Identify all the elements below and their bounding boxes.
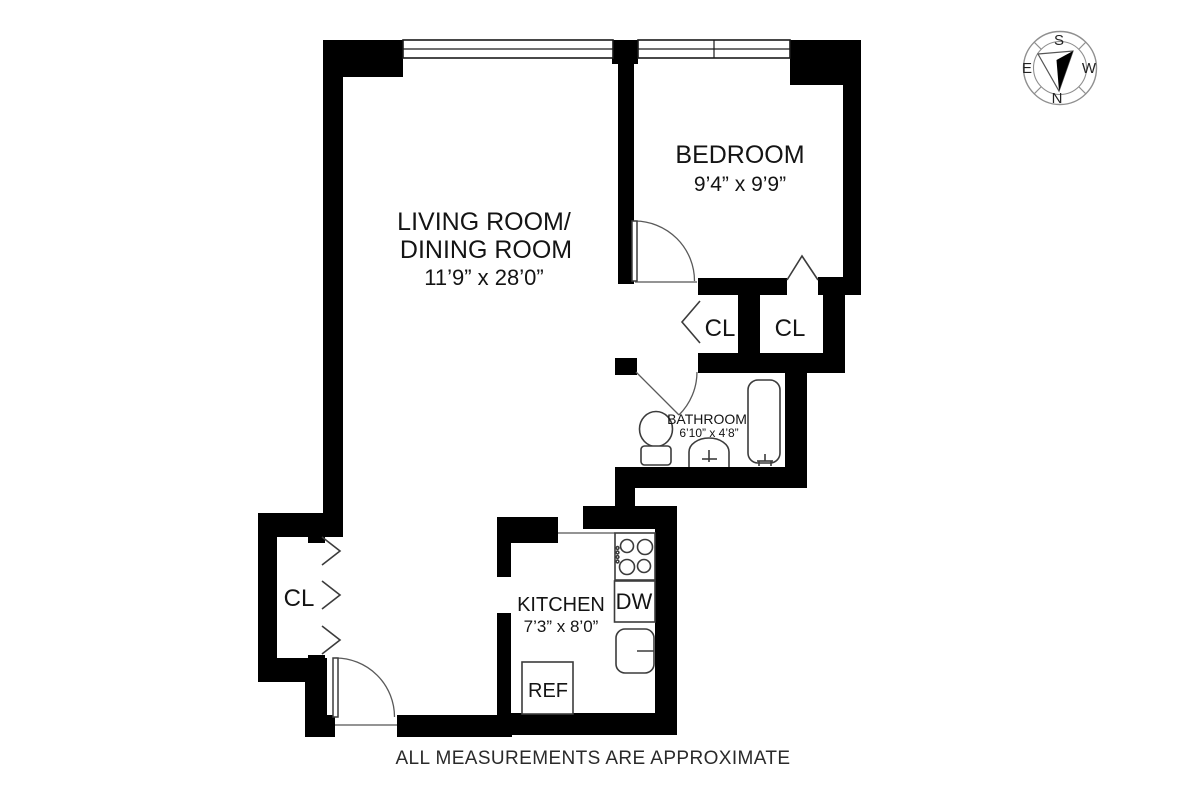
kitchen-dimensions: 7’3” x 8’0” [524,617,599,636]
bedroom-label: BEDROOM [675,141,804,169]
wall-segment [615,358,637,375]
wall-segment [698,353,845,373]
wall-segment [497,713,677,735]
bathroom-door [636,372,697,415]
dishwasher: DW [615,581,656,622]
burner [621,540,634,553]
windows [403,40,790,58]
stove [615,533,655,580]
bedroom-closet-label: CL [775,315,806,342]
bathroom-sink [689,438,729,467]
wall-segment [615,488,635,508]
wall-segment [305,715,335,737]
wall-segment [258,513,277,682]
wall-segment [615,467,807,488]
bathtub [748,380,780,466]
living-room-label-line1: LIVING ROOM/ [397,208,571,236]
compass-tick [1079,42,1086,49]
wall-segment [308,655,325,668]
wall-segment [258,513,343,537]
bathroom-label: BATHROOM [667,411,747,427]
measurements-disclaimer: ALL MEASUREMENTS ARE APPROXIMATE [395,748,790,769]
compass-letter-north: N [1052,90,1063,107]
burner [620,560,635,575]
wall-segment [843,40,861,295]
compass-tick [1034,42,1041,49]
wall-segment [397,715,512,737]
floor-plan-page: DW REF LIVING ROOM/ DINING ROOM 11’9” x … [0,0,1200,800]
floor-plan-canvas: DW REF LIVING ROOM/ DINING ROOM 11’9” x … [0,0,1200,800]
dishwasher-label: DW [616,589,653,614]
wall-segment [818,277,861,295]
living-room-label-line2: DINING ROOM [400,236,572,264]
room-labels: LIVING ROOM/ DINING ROOM 11’9” x 28’0” B… [284,141,806,636]
entry-closet-label: CL [284,585,315,612]
kitchen-label: KITCHEN [517,594,605,616]
refrigerator: REF [522,662,573,714]
refrigerator-label: REF [528,680,568,702]
bathroom-dimensions: 6’10” x 4’8” [679,426,738,440]
entry-door [333,658,397,725]
living-room-dimensions: 11’9” x 28’0” [424,265,543,290]
wall-segment [497,517,511,577]
kitchen-sink [616,629,654,673]
compass-tick [1034,87,1041,94]
wall-segment [655,506,677,735]
bedroom-door [632,221,697,282]
living-room-window [403,40,613,58]
burner [638,540,653,555]
compass-letter-east: E [1022,60,1032,77]
burner [638,560,651,573]
entry-closet-bifold-doors [322,537,340,654]
wall-segment [738,280,760,355]
hall-closet-bifold-door [682,301,700,343]
wall-segment [323,40,343,537]
compass-letter-south: S [1054,32,1064,49]
bedroom-window [638,40,790,58]
bedroom-closet-bifold-door [787,256,818,280]
bedroom-dimensions: 9’4” x 9’9” [694,173,786,196]
compass-letter-west: W [1082,60,1097,77]
compass-rose: S N E W [1022,32,1097,108]
hall-closet-label: CL [705,315,736,342]
compass-tick [1079,87,1086,94]
